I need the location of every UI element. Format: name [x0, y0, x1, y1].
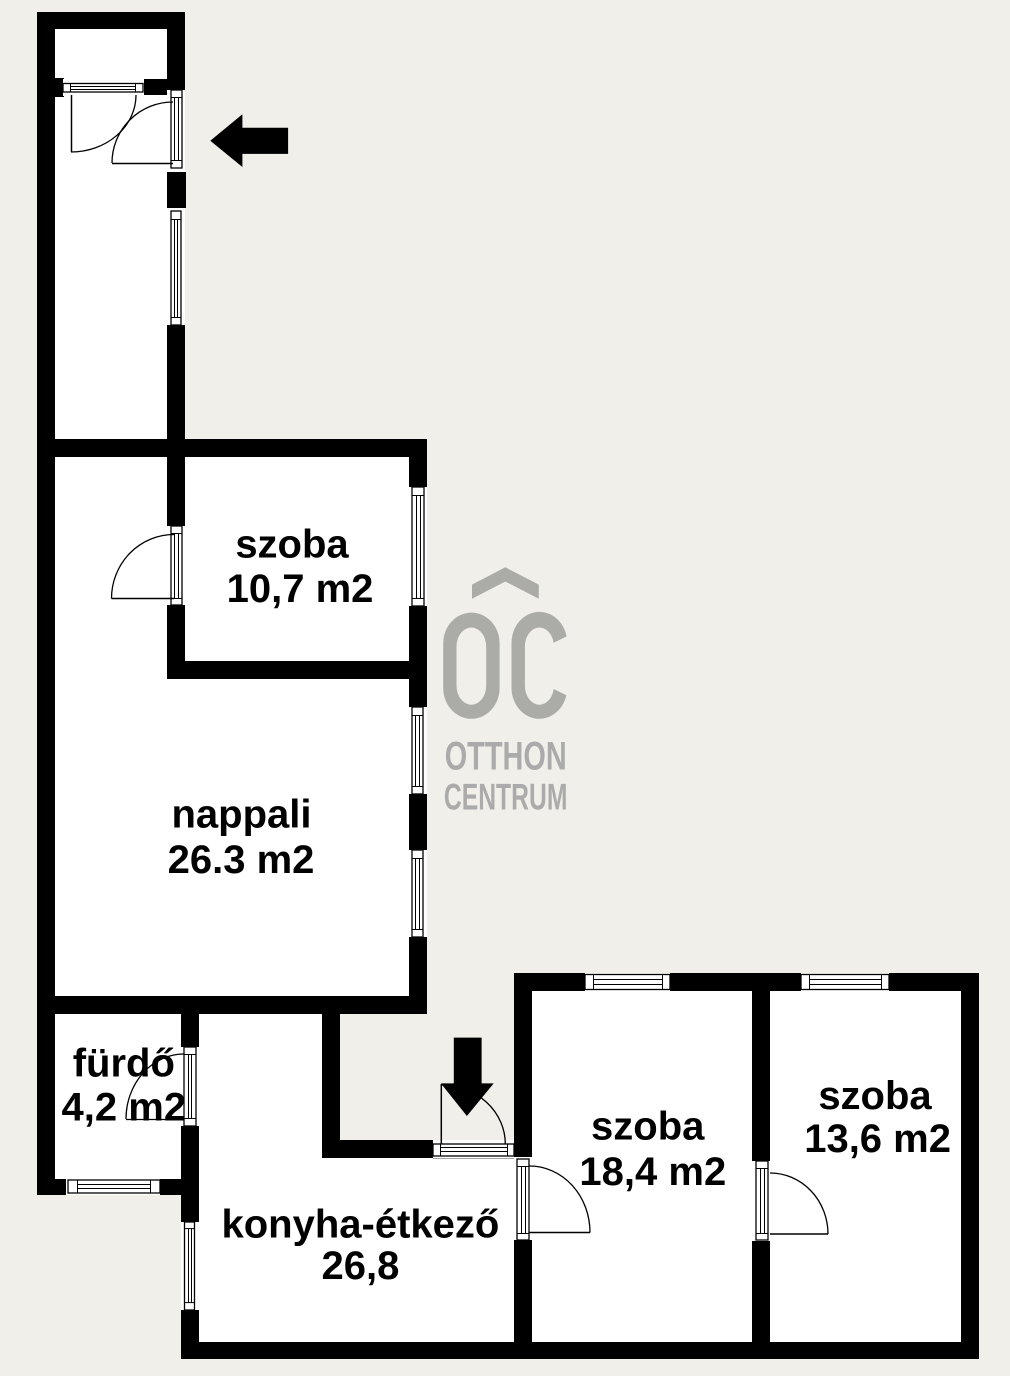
svg-text:4,2 m2: 4,2 m2 [62, 1086, 187, 1130]
svg-text:18,4 m2: 18,4 m2 [579, 1150, 726, 1194]
svg-text:OTTHON: OTTHON [445, 734, 567, 778]
svg-text:szoba: szoba [591, 1104, 705, 1148]
svg-text:26,8: 26,8 [321, 1244, 399, 1288]
svg-text:szoba: szoba [818, 1074, 932, 1118]
svg-text:26.3 m2: 26.3 m2 [168, 838, 315, 882]
svg-text:10,7 m2: 10,7 m2 [227, 567, 374, 611]
svg-text:konyha-étkező: konyha-étkező [221, 1203, 499, 1247]
svg-text:CENTRUM: CENTRUM [444, 777, 568, 818]
svg-text:nappali: nappali [171, 793, 311, 837]
svg-text:szoba: szoba [235, 523, 349, 567]
svg-text:13,6 m2: 13,6 m2 [804, 1117, 951, 1161]
svg-text:fürdő: fürdő [73, 1042, 175, 1086]
